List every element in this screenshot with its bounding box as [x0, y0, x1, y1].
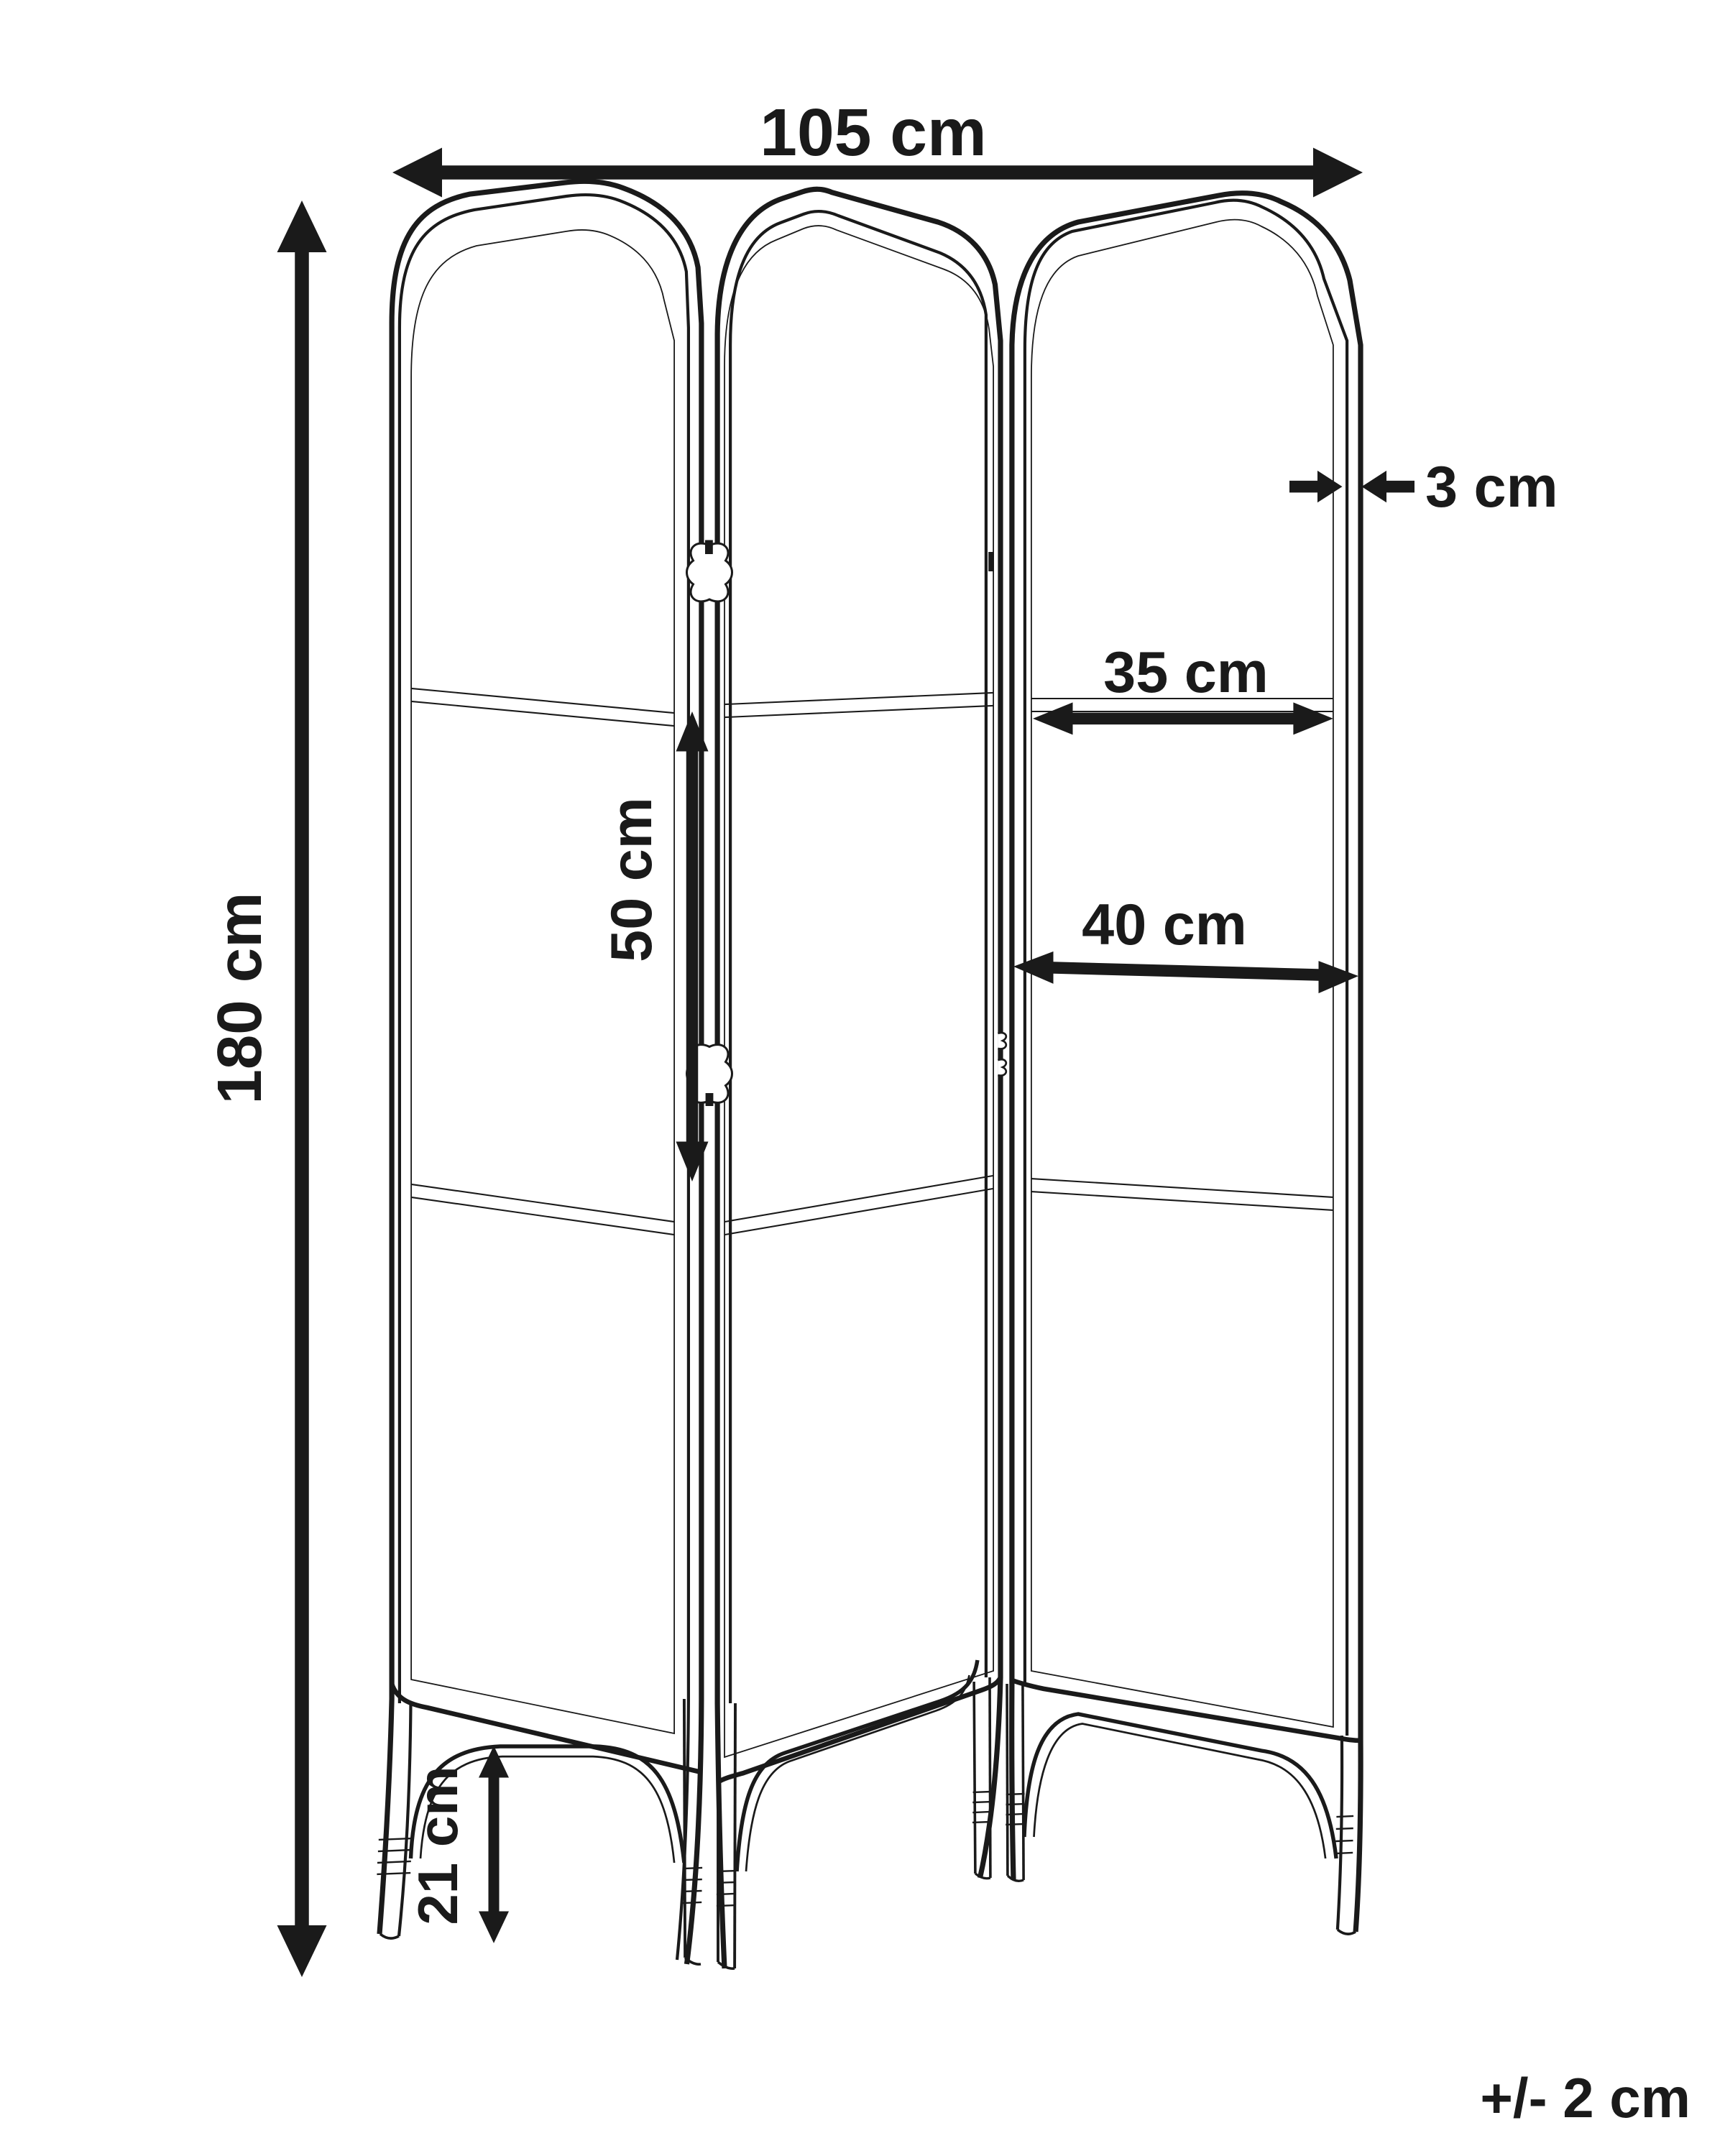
panel-1-rail-1b	[411, 701, 674, 726]
dim-total-height-label: 180 cm	[205, 892, 275, 1104]
panel-3-outer-frame	[1012, 193, 1361, 1932]
tolerance-note: +/- 2 cm	[1480, 2066, 1690, 2129]
dim-panel-mid-width-label: 40 cm	[1082, 893, 1247, 957]
panel-1	[377, 181, 701, 1964]
dim-frame-thickness: 3 cm	[1289, 455, 1558, 520]
panel-3-leg-arch-inner	[1034, 1724, 1326, 1859]
panel-2-leg-arch	[737, 1660, 977, 1871]
panel-1-rail-1	[411, 688, 674, 713]
dim-panel-mid-width: 40 cm	[1013, 893, 1358, 993]
panel-1-mid-frame	[400, 195, 689, 1960]
dim-total-width: 105 cm	[392, 95, 1363, 198]
panel-3-right-leg	[1335, 1736, 1356, 1934]
panel-2-rail-1b	[724, 706, 993, 717]
dim-panel-inner-width: 35 cm	[1033, 640, 1333, 734]
panel-2-rail-2	[724, 1176, 993, 1222]
panel-3	[1012, 193, 1361, 1934]
panel-1-inner-line	[411, 230, 674, 1733]
panel-3-leg-arch	[1024, 1714, 1336, 1858]
dim-leg-height: 21 cm	[406, 1746, 509, 1943]
fold-1-hinge-top	[687, 540, 732, 602]
panel-2-rail-2b	[724, 1189, 993, 1235]
panel-1-bottom-rail	[392, 1684, 701, 1772]
dim-mid-section-height: 50 cm	[599, 711, 709, 1181]
fold-2-hinge-mid-b	[998, 1059, 1006, 1076]
panel-1-outer-frame	[379, 181, 701, 1964]
dimension-diagram: 105 cm 180 cm 3 cm 35 cm 40 cm 50 cm	[0, 0, 1725, 2156]
dim-total-width-label: 105 cm	[760, 95, 986, 170]
panel-2-rail-1	[724, 693, 993, 704]
screen-drawing: 105 cm 180 cm 3 cm 35 cm 40 cm 50 cm	[0, 0, 1725, 2156]
dim-mid-section-height-label: 50 cm	[599, 797, 664, 962]
panel-2	[717, 189, 1000, 1968]
dim-frame-thickness-label: 3 cm	[1425, 455, 1558, 520]
fold-2-hinge-mid-a	[998, 1033, 1006, 1049]
panel-2-inner-line	[724, 226, 993, 1757]
panel-2-outer-frame	[717, 189, 1000, 1968]
dim-panel-inner-width-label: 35 cm	[1103, 640, 1269, 705]
dim-total-height: 180 cm	[205, 201, 327, 1977]
panel-2-mid-frame	[730, 211, 986, 1703]
dim-leg-height-label: 21 cm	[406, 1766, 469, 1925]
